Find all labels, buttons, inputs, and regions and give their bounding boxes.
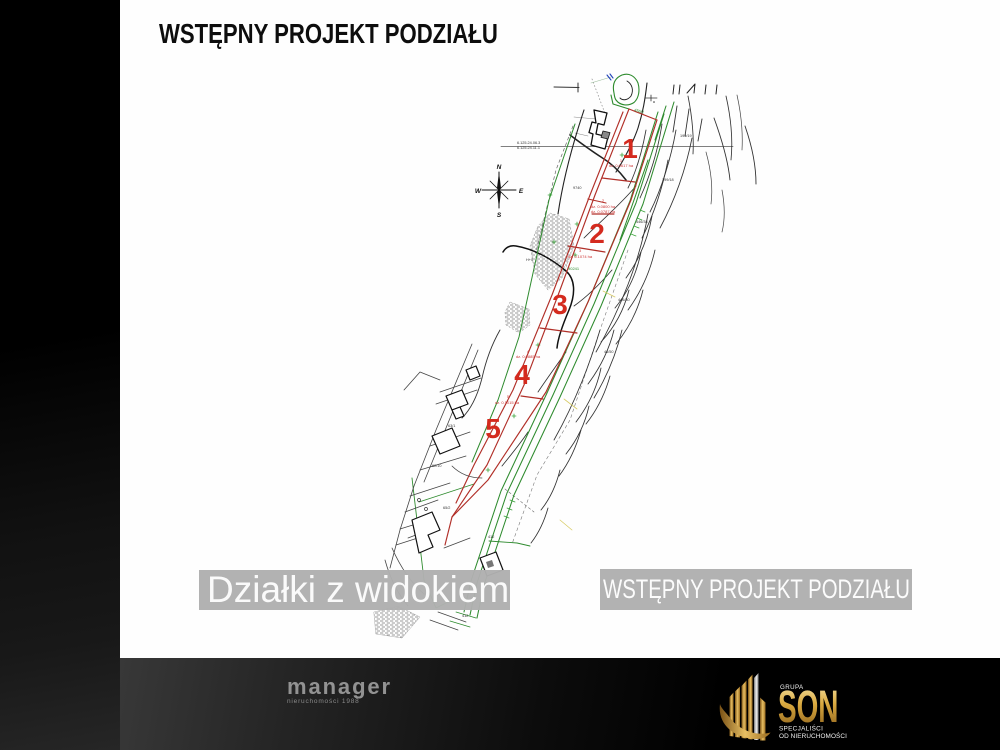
svg-text:4: 4 [514,359,530,390]
svg-text:S: S [497,212,502,219]
svg-text:W: W [475,188,482,195]
svg-text:412: 412 [462,614,468,618]
svg-text:OD NIERUCHOMOŚCI: OD NIERUCHOMOŚCI [779,731,847,740]
svg-text:199/19: 199/19 [680,134,692,138]
svg-text:SON: SON [778,681,838,731]
svg-text:SPECJALIŚCI: SPECJALIŚCI [779,724,823,733]
svg-text:65/2: 65/2 [443,506,450,510]
svg-text:6.125.24.06.3: 6.125.24.06.3 [517,141,540,145]
svg-text:412: 412 [488,535,494,539]
svg-text:2: 2 [589,218,605,249]
svg-text:dz. 0.1074 ha: dz. 0.1074 ha [568,254,593,259]
svg-text:1: 1 [622,133,638,164]
svg-text:446/38: 446/38 [636,220,648,224]
svg-text:90241: 90241 [568,266,580,271]
svg-text:199/18: 199/18 [662,178,674,182]
svg-text:3: 3 [552,289,568,320]
svg-text:N: N [497,164,502,171]
svg-text:dz. 0.0787 ha: dz. 0.0787 ha [591,209,616,214]
svg-text:E: E [519,188,524,195]
svg-text:63/1: 63/1 [448,424,455,428]
svg-text:46/50: 46/50 [604,350,614,354]
svg-text:dz. 0.0617 ha: dz. 0.0617 ha [609,163,634,168]
svg-text:dz. 0.1015 ha: dz. 0.1015 ha [495,400,520,405]
svg-text:H+0: H+0 [526,258,533,262]
svg-text:dz. 0.0885 ha: dz. 0.0885 ha [516,354,541,359]
svg-text:5: 5 [485,413,501,444]
svg-text:62/10: 62/10 [432,464,442,468]
svg-text:446/30: 446/30 [618,298,630,302]
svg-text:9740: 9740 [573,186,581,190]
svg-text:6.125.24.11.1: 6.125.24.11.1 [517,146,540,150]
